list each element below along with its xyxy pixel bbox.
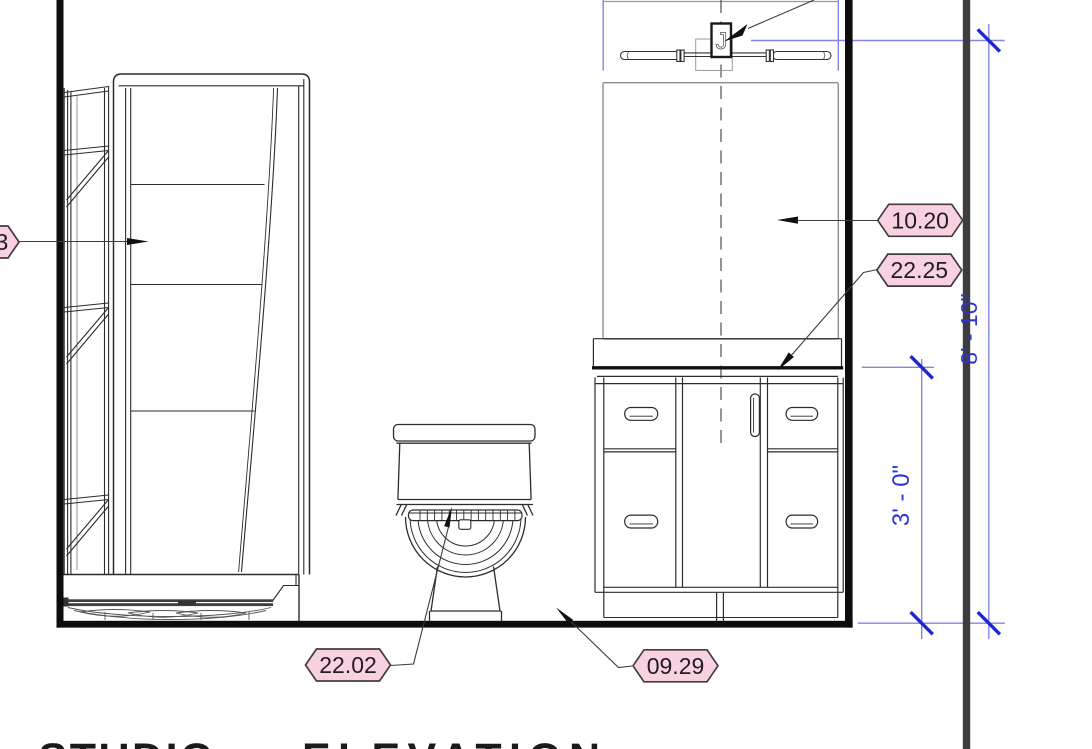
svg-text:09.29: 09.29 [647,653,705,679]
svg-text:STUDIO: STUDIO [39,735,214,749]
svg-text:10.20: 10.20 [891,207,949,233]
svg-text:22.25: 22.25 [891,257,949,283]
svg-text:J: J [716,28,728,55]
svg-text:3' - 0": 3' - 0" [888,465,915,526]
svg-text:8' - 10": 8' - 10" [956,293,982,364]
svg-text:22.02: 22.02 [319,652,377,678]
svg-text:ELEVATION: ELEVATION [302,735,600,749]
svg-text:22.03: 22.03 [0,229,8,255]
